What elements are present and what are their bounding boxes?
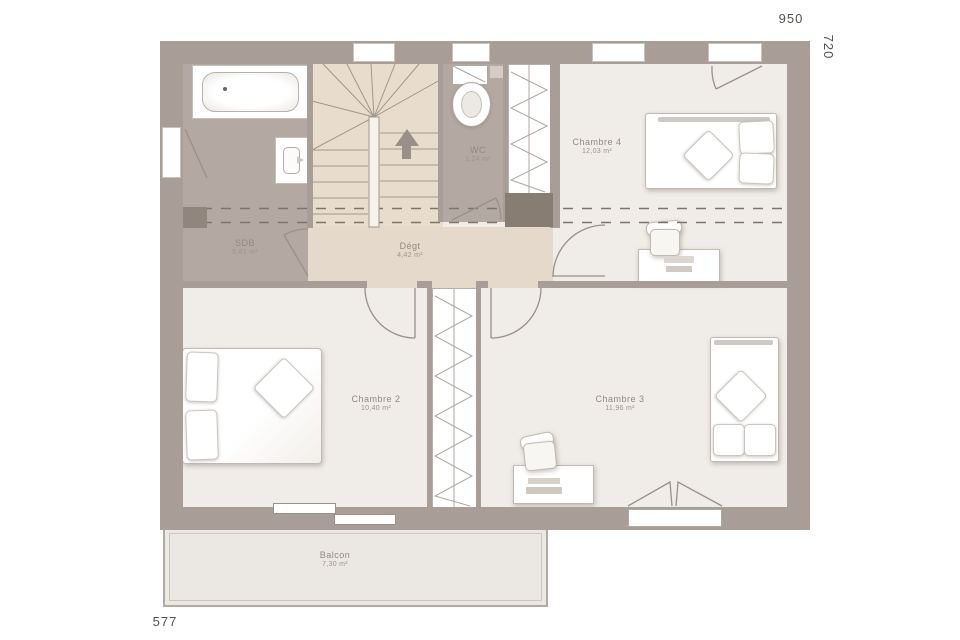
room-name: SDB xyxy=(205,238,285,249)
room-name: Dégt xyxy=(370,241,450,252)
wall-mid-3 xyxy=(476,281,488,288)
room-area: 7,30 m² xyxy=(275,561,395,570)
room-label-chambre2: Chambre 2 10,40 m² xyxy=(316,394,436,414)
dimension-right: 720 xyxy=(821,27,836,67)
chair-chambre3-seat xyxy=(523,440,558,471)
wall-sdb-stub xyxy=(183,207,207,228)
room-name: Chambre 4 xyxy=(547,137,647,148)
wall-wc-west xyxy=(438,64,443,222)
floor-stairs xyxy=(312,64,443,228)
wall-sdb-east xyxy=(307,64,313,228)
room-name: Chambre 3 xyxy=(560,394,680,405)
room-label-chambre4: Chambre 4 12,03 m² xyxy=(547,137,647,157)
room-area: 4,42 m² xyxy=(370,252,450,261)
desk-chambre3 xyxy=(513,465,594,504)
bathtub-basin xyxy=(202,72,299,112)
room-area: 5,81 m² xyxy=(205,249,285,258)
duct xyxy=(490,66,503,78)
floor-plan: SDB 5,81 m² WC 1,24 m² Dégt 4,42 m² Cham… xyxy=(0,0,960,640)
window-top-chambre4-b xyxy=(708,43,762,62)
window-top-stairs xyxy=(353,43,395,62)
wall-mid-4 xyxy=(538,281,787,288)
room-label-balcon: Balcon 7,30 m² xyxy=(275,550,395,570)
room-label-chambre3: Chambre 3 11,96 m² xyxy=(560,394,680,414)
desk-paper xyxy=(666,266,692,272)
toilet-seat xyxy=(461,91,482,118)
window-top-chambre4-a xyxy=(592,43,645,62)
pillow xyxy=(738,152,774,184)
room-name: Chambre 2 xyxy=(316,394,436,405)
pillow xyxy=(744,424,776,456)
pillow xyxy=(185,409,219,460)
room-label-wc: WC 1,24 m² xyxy=(438,145,518,165)
pillow xyxy=(185,351,219,402)
window-top-wc xyxy=(452,43,490,62)
room-label-sdb: SDB 5,81 m² xyxy=(205,238,285,258)
wardrobe-top xyxy=(508,64,552,195)
pillow xyxy=(713,424,745,456)
room-name: Balcon xyxy=(275,550,395,561)
dimension-bottom: 577 xyxy=(145,614,185,629)
wardrobe-middle xyxy=(432,288,478,509)
washbasin-tap xyxy=(297,156,304,164)
bathtub-drain xyxy=(223,87,227,91)
room-name: WC xyxy=(438,145,518,156)
wall-chunk-wc-south xyxy=(505,193,553,227)
wall-right xyxy=(787,41,810,530)
room-label-degt: Dégt 4,42 m² xyxy=(370,241,450,261)
wall-mid-1 xyxy=(183,281,367,288)
sliding-door-panel-left xyxy=(273,503,336,514)
desk-paper xyxy=(664,256,694,263)
room-area: 10,40 m² xyxy=(316,405,436,414)
wall-mid-2 xyxy=(417,281,432,288)
window-left-sdb xyxy=(162,127,181,178)
pillow xyxy=(738,120,775,155)
desk-paper xyxy=(528,478,560,484)
dimension-top: 950 xyxy=(766,11,816,26)
wall-wardrobe2-east xyxy=(476,288,481,507)
room-area: 12,03 m² xyxy=(547,148,647,157)
chair-chambre4-seat xyxy=(650,229,680,256)
wall-left xyxy=(160,41,183,530)
bed-chambre3-footline xyxy=(714,340,773,345)
sliding-door-panel-right xyxy=(334,514,396,525)
room-area: 11,96 m² xyxy=(560,405,680,414)
room-area: 1,24 m² xyxy=(438,156,518,165)
window-bottom-chambre3 xyxy=(628,509,722,527)
desk-paper xyxy=(526,487,562,494)
